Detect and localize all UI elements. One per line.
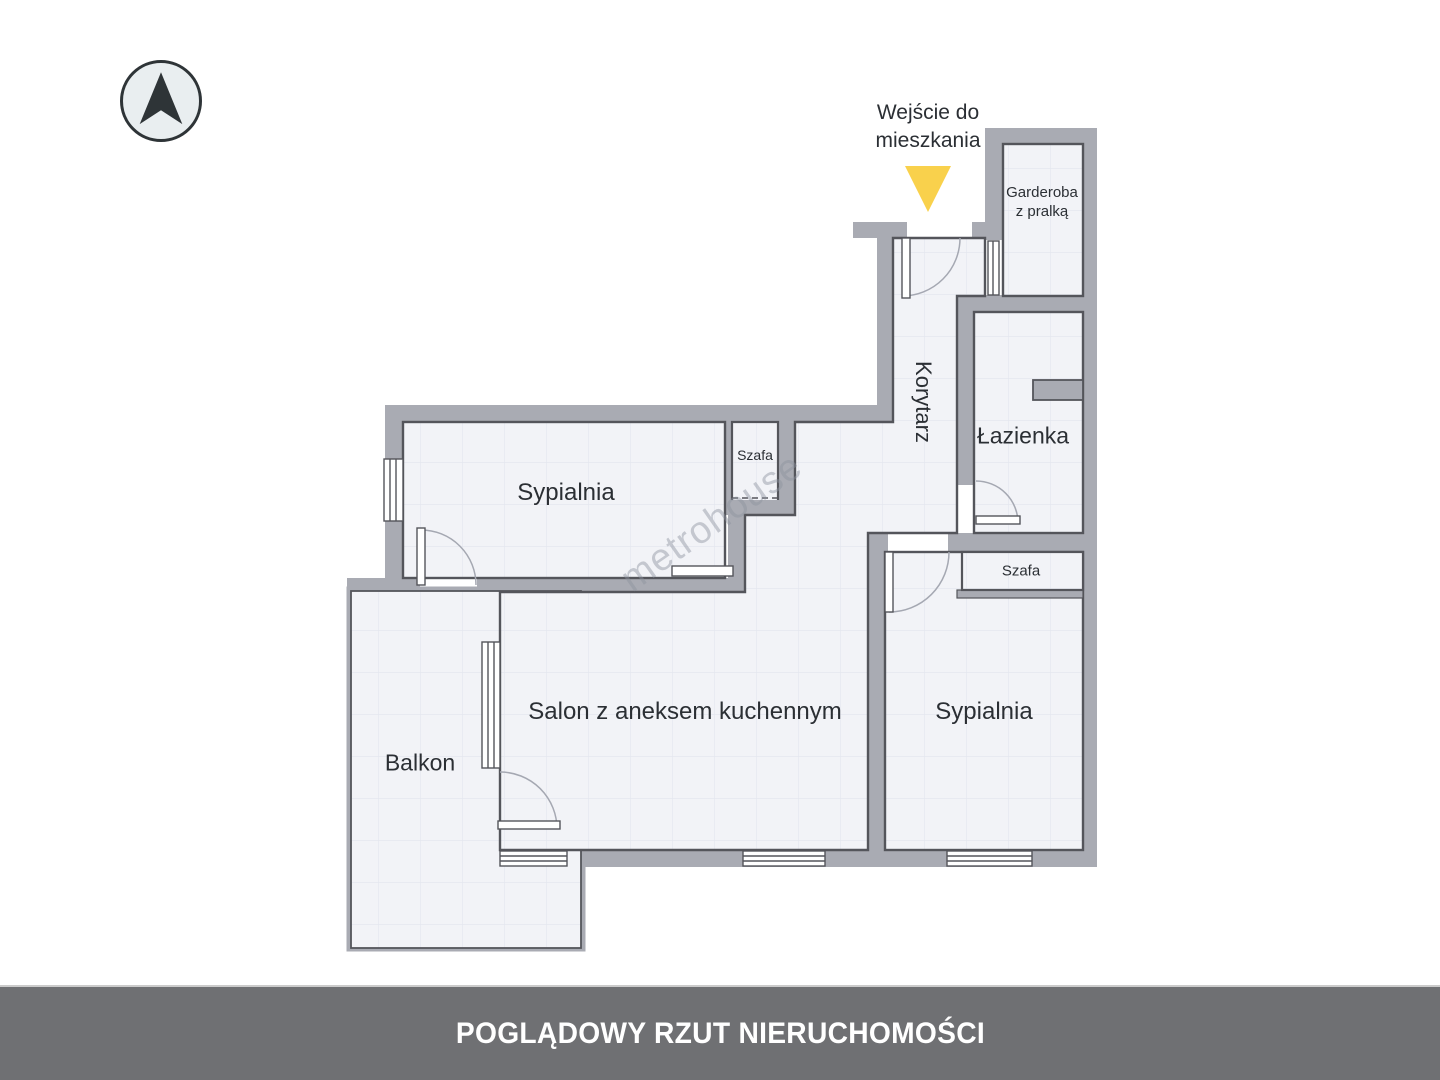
bathroom-door-leaf [976, 516, 1020, 524]
window-salon-2 [743, 851, 825, 866]
entrance-label-line1: Wejście do [875, 99, 980, 127]
entrance-label-line2: mieszkania [875, 127, 980, 155]
room-label-garderoba: Garderoba z pralką [1006, 183, 1078, 221]
room-label-szafa-bedroom: Szafa [1002, 562, 1040, 581]
window-bedroom-left [384, 459, 403, 521]
wall-under-wardrobe [957, 590, 1083, 598]
room-label-sypialnia-right: Sypialnia [935, 698, 1032, 726]
room-label-lazienka: Łazienka [977, 423, 1069, 450]
entrance-door-leaf [902, 238, 910, 298]
bedroom-right-door-leaf [885, 552, 893, 612]
bedroom-left-balcony-door-leaf [417, 528, 425, 585]
entrance-label: Wejście do mieszkania [875, 99, 980, 155]
compass-north-icon [120, 60, 202, 142]
window-bedroom-right [947, 851, 1032, 866]
north-arrow-icon [123, 63, 199, 139]
window-balcony-wall [482, 642, 500, 768]
room-label-balkon: Balkon [385, 750, 455, 777]
banner-title: POGLĄDOWY RZUT NIERUCHOMOŚCI [455, 1017, 984, 1051]
room-label-korytarz: Korytarz [910, 361, 936, 443]
floor-plan-page: Wejście do mieszkania Garderoba z pralką… [0, 0, 1440, 1080]
room-label-salon: Salon z aneksem kuchennym [528, 698, 842, 726]
window-salon-1 [500, 851, 567, 866]
salon-balcony-door-leaf [498, 821, 560, 829]
entrance-arrow-icon [905, 166, 951, 212]
room-label-sypialnia-left: Sypialnia [517, 479, 614, 507]
bathroom-duct-notch [1033, 380, 1083, 400]
footer-banner: POGLĄDOWY RZUT NIERUCHOMOŚCI [0, 985, 1440, 1080]
